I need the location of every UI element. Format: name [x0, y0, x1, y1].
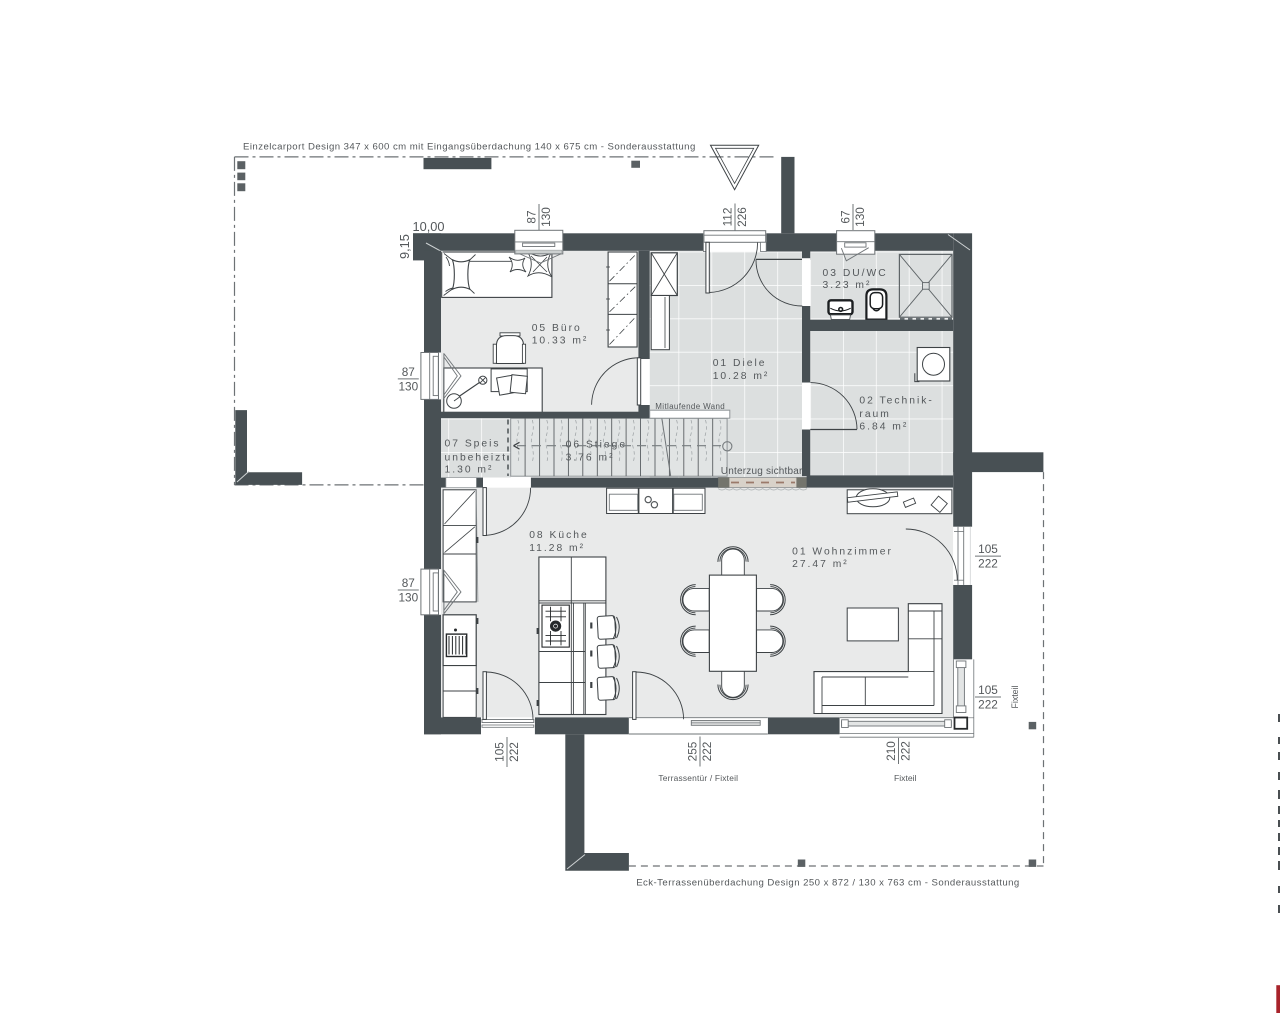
svg-text:105: 105 [978, 542, 998, 556]
svg-text:Mitlaufende Wand: Mitlaufende Wand [655, 402, 725, 411]
svg-text:130: 130 [398, 591, 418, 605]
svg-text:27.47 m²: 27.47 m² [792, 559, 849, 570]
svg-text:Unterzug sichtbar: Unterzug sichtbar [721, 466, 803, 477]
svg-text:Fixteil: Fixteil [894, 773, 917, 783]
svg-text:02 Technik-: 02 Technik- [859, 396, 933, 407]
svg-text:87: 87 [525, 210, 539, 223]
svg-text:01 Diele: 01 Diele [713, 358, 767, 369]
svg-text:11.28 m²: 11.28 m² [529, 543, 585, 554]
svg-text:210: 210 [884, 741, 898, 761]
svg-text:226: 226 [735, 207, 749, 227]
svg-text:222: 222 [978, 698, 998, 712]
svg-text:9,15: 9,15 [397, 234, 412, 259]
svg-text:130: 130 [853, 207, 867, 227]
svg-text:Terrassentür / Fixteil: Terrassentür / Fixteil [658, 773, 738, 783]
svg-text:unbeheizt: unbeheizt [445, 452, 508, 463]
svg-text:3.23 m²: 3.23 m² [823, 280, 872, 291]
svg-text:Fixteil: Fixteil [1010, 685, 1020, 708]
svg-text:1.30 m²: 1.30 m² [445, 465, 494, 476]
svg-text:87: 87 [402, 365, 415, 379]
svg-text:05 Büro: 05 Büro [532, 323, 582, 334]
svg-text:08 Küche: 08 Küche [529, 530, 589, 541]
svg-text:Einzelcarport Design 347 x 600: Einzelcarport Design 347 x 600 cm mit Ei… [243, 142, 696, 153]
svg-text:222: 222 [978, 557, 998, 571]
svg-text:222: 222 [899, 741, 913, 761]
svg-text:255: 255 [686, 741, 700, 761]
svg-text:130: 130 [539, 207, 553, 227]
svg-text:10.33 m²: 10.33 m² [532, 335, 589, 346]
svg-text:130: 130 [398, 379, 418, 393]
svg-text:03 DU/WC: 03 DU/WC [823, 268, 888, 279]
svg-text:06 Stiege: 06 Stiege [566, 440, 628, 451]
svg-text:6.84 m²: 6.84 m² [859, 422, 908, 433]
svg-text:222: 222 [700, 742, 714, 762]
svg-text:222: 222 [507, 742, 521, 762]
svg-text:07 Speis: 07 Speis [445, 438, 501, 449]
svg-text:10.28 m²: 10.28 m² [713, 371, 770, 382]
svg-text:105: 105 [493, 742, 507, 762]
svg-text:105: 105 [978, 683, 998, 697]
svg-text:3.76 m²: 3.76 m² [566, 453, 615, 464]
svg-text:Eck-Terrassenüberdachung Desig: Eck-Terrassenüberdachung Design 250 x 87… [636, 878, 1020, 889]
svg-text:112: 112 [721, 208, 735, 227]
svg-text:87: 87 [402, 576, 415, 590]
svg-text:01 Wohnzimmer: 01 Wohnzimmer [792, 547, 893, 558]
svg-text:67: 67 [839, 210, 853, 223]
svg-text:raum: raum [859, 409, 890, 420]
svg-text:10,00: 10,00 [413, 219, 445, 234]
